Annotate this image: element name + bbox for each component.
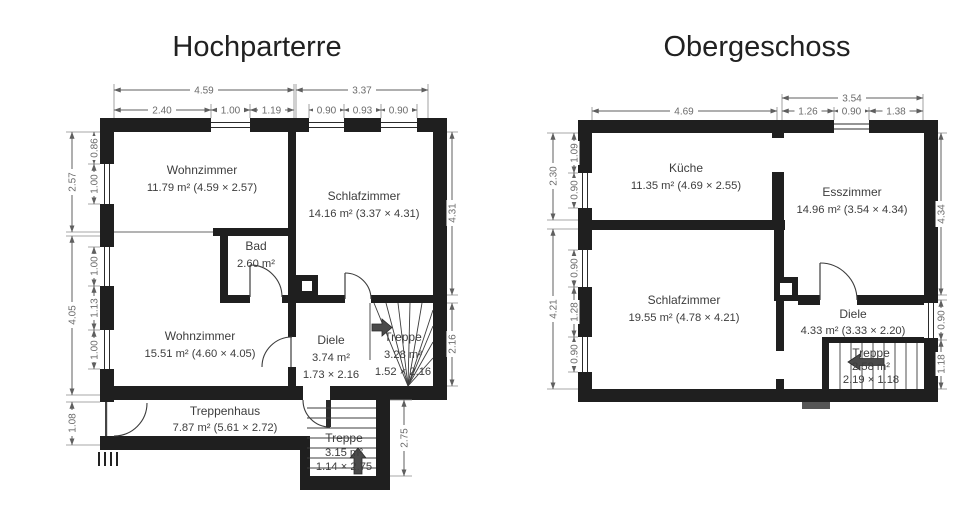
room-label: Diele <box>839 307 867 321</box>
window <box>100 164 114 204</box>
svg-text:1.13: 1.13 <box>90 298 101 318</box>
dim: 0.86 <box>89 132 101 164</box>
room-label: Esszimmer <box>822 185 881 199</box>
room-area: 11.79 m² (4.59 × 2.57) <box>147 182 257 194</box>
door-esszimmer <box>820 263 857 300</box>
door-entrance <box>100 402 147 436</box>
dim: 1.00 <box>89 330 101 369</box>
svg-text:0.93: 0.93 <box>353 106 373 117</box>
room-area: 14.96 m² (3.54 × 4.34) <box>796 204 907 216</box>
svg-text:0.90: 0.90 <box>570 180 581 200</box>
room-label: Treppe <box>384 330 422 344</box>
room-area: 2.60 m² <box>237 258 275 270</box>
svg-text:1.18: 1.18 <box>937 354 948 374</box>
room-label: Wohnzimmer <box>167 163 237 177</box>
room-size: 1.14 × 2.75 <box>316 461 372 473</box>
dim: 3.54 <box>782 93 923 105</box>
dim: 3.37 <box>296 85 428 97</box>
dimension-ticks <box>547 94 947 389</box>
room-label: Treppe <box>325 431 363 445</box>
svg-text:4.05: 4.05 <box>68 305 79 325</box>
dim: 0.93 <box>344 105 381 117</box>
dim: 0.90 <box>309 105 344 117</box>
chimney-obergeschoss <box>774 277 798 301</box>
obergeschoss-room-labels: Küche 11.35 m² (4.69 × 2.55) Esszimmer 1… <box>628 161 907 386</box>
room-area: 2.58 m² <box>852 361 890 373</box>
svg-text:1.38: 1.38 <box>886 107 906 118</box>
room-area: 3.28 m² <box>384 349 422 361</box>
plan-obergeschoss: Obergeschoss <box>547 31 948 409</box>
obergeschoss-title: Obergeschoss <box>664 31 851 63</box>
hochparterre-dimensions: 4.59 3.37 2.40 1.00 1.19 0.90 0.93 0.90 … <box>67 85 459 477</box>
room-label: Diele <box>317 333 345 347</box>
entrance-steps <box>99 452 117 466</box>
room-label: Wohnzimmer <box>165 329 235 343</box>
dim: 2.57 <box>67 132 79 232</box>
dim: 1.00 <box>89 164 101 204</box>
dim: 4.59 <box>114 85 294 97</box>
room-area: 4.33 m² (3.33 × 2.20) <box>801 325 906 337</box>
hochparterre-title: Hochparterre <box>172 31 341 63</box>
svg-text:3.37: 3.37 <box>352 86 372 97</box>
room-size: 1.73 × 2.16 <box>303 369 359 381</box>
svg-text:3.54: 3.54 <box>842 94 862 105</box>
svg-text:2.16: 2.16 <box>448 334 459 354</box>
svg-text:2.75: 2.75 <box>400 428 411 448</box>
dim: 1.00 <box>89 247 101 286</box>
window <box>211 118 250 132</box>
svg-text:2.57: 2.57 <box>68 172 79 192</box>
dim: 1.00 <box>211 105 250 117</box>
room-label: Treppe <box>852 346 890 360</box>
window <box>100 247 114 286</box>
svg-text:0.90: 0.90 <box>937 310 948 330</box>
svg-text:1.28: 1.28 <box>570 302 581 322</box>
obergeschoss-doors <box>820 263 857 300</box>
dim: 2.30 <box>548 133 560 220</box>
room-label: Schlafzimmer <box>648 293 721 307</box>
window <box>100 330 114 369</box>
room-label: Bad <box>245 239 266 253</box>
svg-text:1.08: 1.08 <box>68 413 79 433</box>
window <box>309 118 344 132</box>
dim: 4.21 <box>548 229 560 389</box>
plan-hochparterre: Hochparterre <box>66 31 459 490</box>
dim: 0.90 <box>834 106 869 118</box>
svg-text:1.26: 1.26 <box>798 107 818 118</box>
door-wohnzimmer-diele <box>262 337 292 367</box>
room-area: 3.15 m² <box>325 447 363 459</box>
svg-text:1.00: 1.00 <box>90 340 101 360</box>
svg-text:0.86: 0.86 <box>90 138 101 158</box>
svg-text:1.00: 1.00 <box>90 256 101 276</box>
dim: 0.90 <box>381 105 417 117</box>
room-area: 19.55 m² (4.78 × 4.21) <box>628 312 739 324</box>
svg-text:2.40: 2.40 <box>152 106 172 117</box>
svg-text:4.69: 4.69 <box>674 107 694 118</box>
svg-text:4.59: 4.59 <box>194 86 214 97</box>
room-size: 1.52 × 2.16 <box>375 366 431 378</box>
dim: 2.40 <box>114 105 211 117</box>
svg-text:1.19: 1.19 <box>262 106 282 117</box>
room-label: Küche <box>669 161 703 175</box>
room-label: Treppenhaus <box>190 404 260 418</box>
door-schlafzimmer <box>345 273 371 299</box>
chimney-hochparterre <box>296 275 318 297</box>
svg-text:0.90: 0.90 <box>317 106 337 117</box>
svg-text:4.21: 4.21 <box>549 299 560 319</box>
svg-text:4.31: 4.31 <box>448 203 459 223</box>
svg-text:0.90: 0.90 <box>570 258 581 278</box>
svg-text:2.30: 2.30 <box>549 166 560 186</box>
dim: 2.75 <box>399 400 411 476</box>
room-area: 7.87 m² (5.61 × 2.72) <box>173 422 278 434</box>
svg-text:4.34: 4.34 <box>937 204 948 224</box>
svg-text:1.00: 1.00 <box>221 106 241 117</box>
room-area: 15.51 m² (4.60 × 4.05) <box>144 348 255 360</box>
svg-text:1.00: 1.00 <box>90 174 101 194</box>
room-size: 2.19 × 1.18 <box>843 374 899 386</box>
hochparterre-walls <box>100 118 447 490</box>
room-area: 14.16 m² (3.37 × 4.31) <box>308 208 419 220</box>
room-area: 3.74 m² <box>312 352 350 364</box>
dim: 4.31 <box>447 132 459 295</box>
dim: 1.13 <box>89 286 101 330</box>
svg-text:0.90: 0.90 <box>842 107 862 118</box>
dim: 1.08 <box>67 402 79 445</box>
dim: 1.19 <box>250 105 294 117</box>
svg-text:1.09: 1.09 <box>570 143 581 163</box>
door-treppenhaus-diele <box>303 400 331 427</box>
floorplan-page: Hochparterre <box>0 0 960 532</box>
exterior-step-stub <box>802 402 830 409</box>
window <box>834 120 869 133</box>
window <box>381 118 417 132</box>
obergeschoss-dimensions: 3.54 4.69 1.26 0.90 1.38 2.30 4.21 1.09 … <box>548 93 948 390</box>
svg-text:0.90: 0.90 <box>389 106 409 117</box>
floorplan-canvas: Hochparterre <box>0 0 960 532</box>
room-area: 11.35 m² (4.69 × 2.55) <box>631 180 741 192</box>
room-label: Schlafzimmer <box>328 189 401 203</box>
dim: 2.16 <box>447 303 459 386</box>
dim: 1.38 <box>869 106 923 118</box>
dim: 4.05 <box>67 236 79 395</box>
dim: 1.26 <box>782 106 834 118</box>
svg-text:0.90: 0.90 <box>570 344 581 364</box>
dim: 4.69 <box>592 106 777 118</box>
dimension-ticks <box>66 84 458 476</box>
